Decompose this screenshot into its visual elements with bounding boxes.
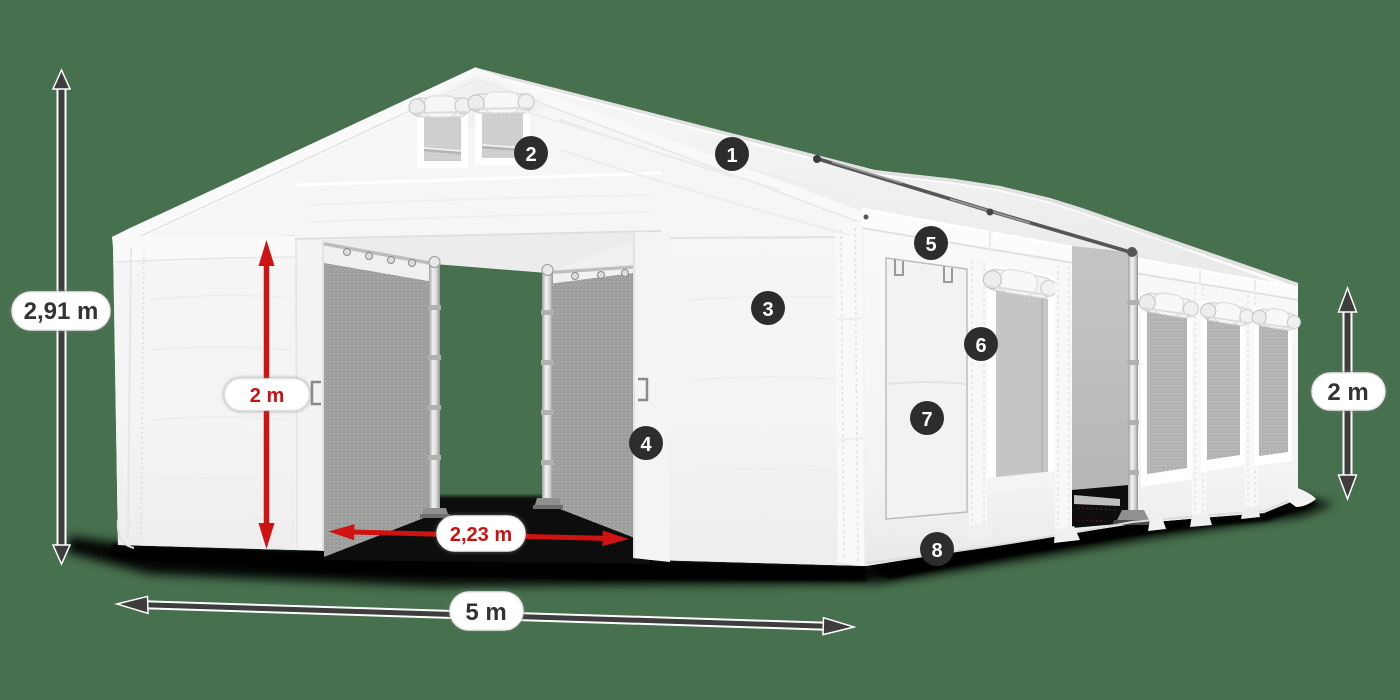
svg-text:2 m: 2 m (1327, 379, 1368, 406)
svg-text:6: 6 (975, 335, 986, 357)
svg-text:2: 2 (525, 144, 536, 166)
svg-text:3: 3 (762, 299, 773, 321)
svg-text:4: 4 (640, 434, 652, 456)
svg-text:8: 8 (931, 540, 942, 562)
svg-text:2,23 m: 2,23 m (450, 524, 512, 546)
svg-text:5: 5 (925, 234, 936, 256)
svg-text:5 m: 5 m (465, 599, 506, 626)
svg-text:1: 1 (726, 145, 737, 167)
svg-text:2 m: 2 m (250, 385, 284, 407)
svg-text:2,91 m: 2,91 m (24, 298, 99, 325)
svg-text:7: 7 (921, 409, 932, 431)
